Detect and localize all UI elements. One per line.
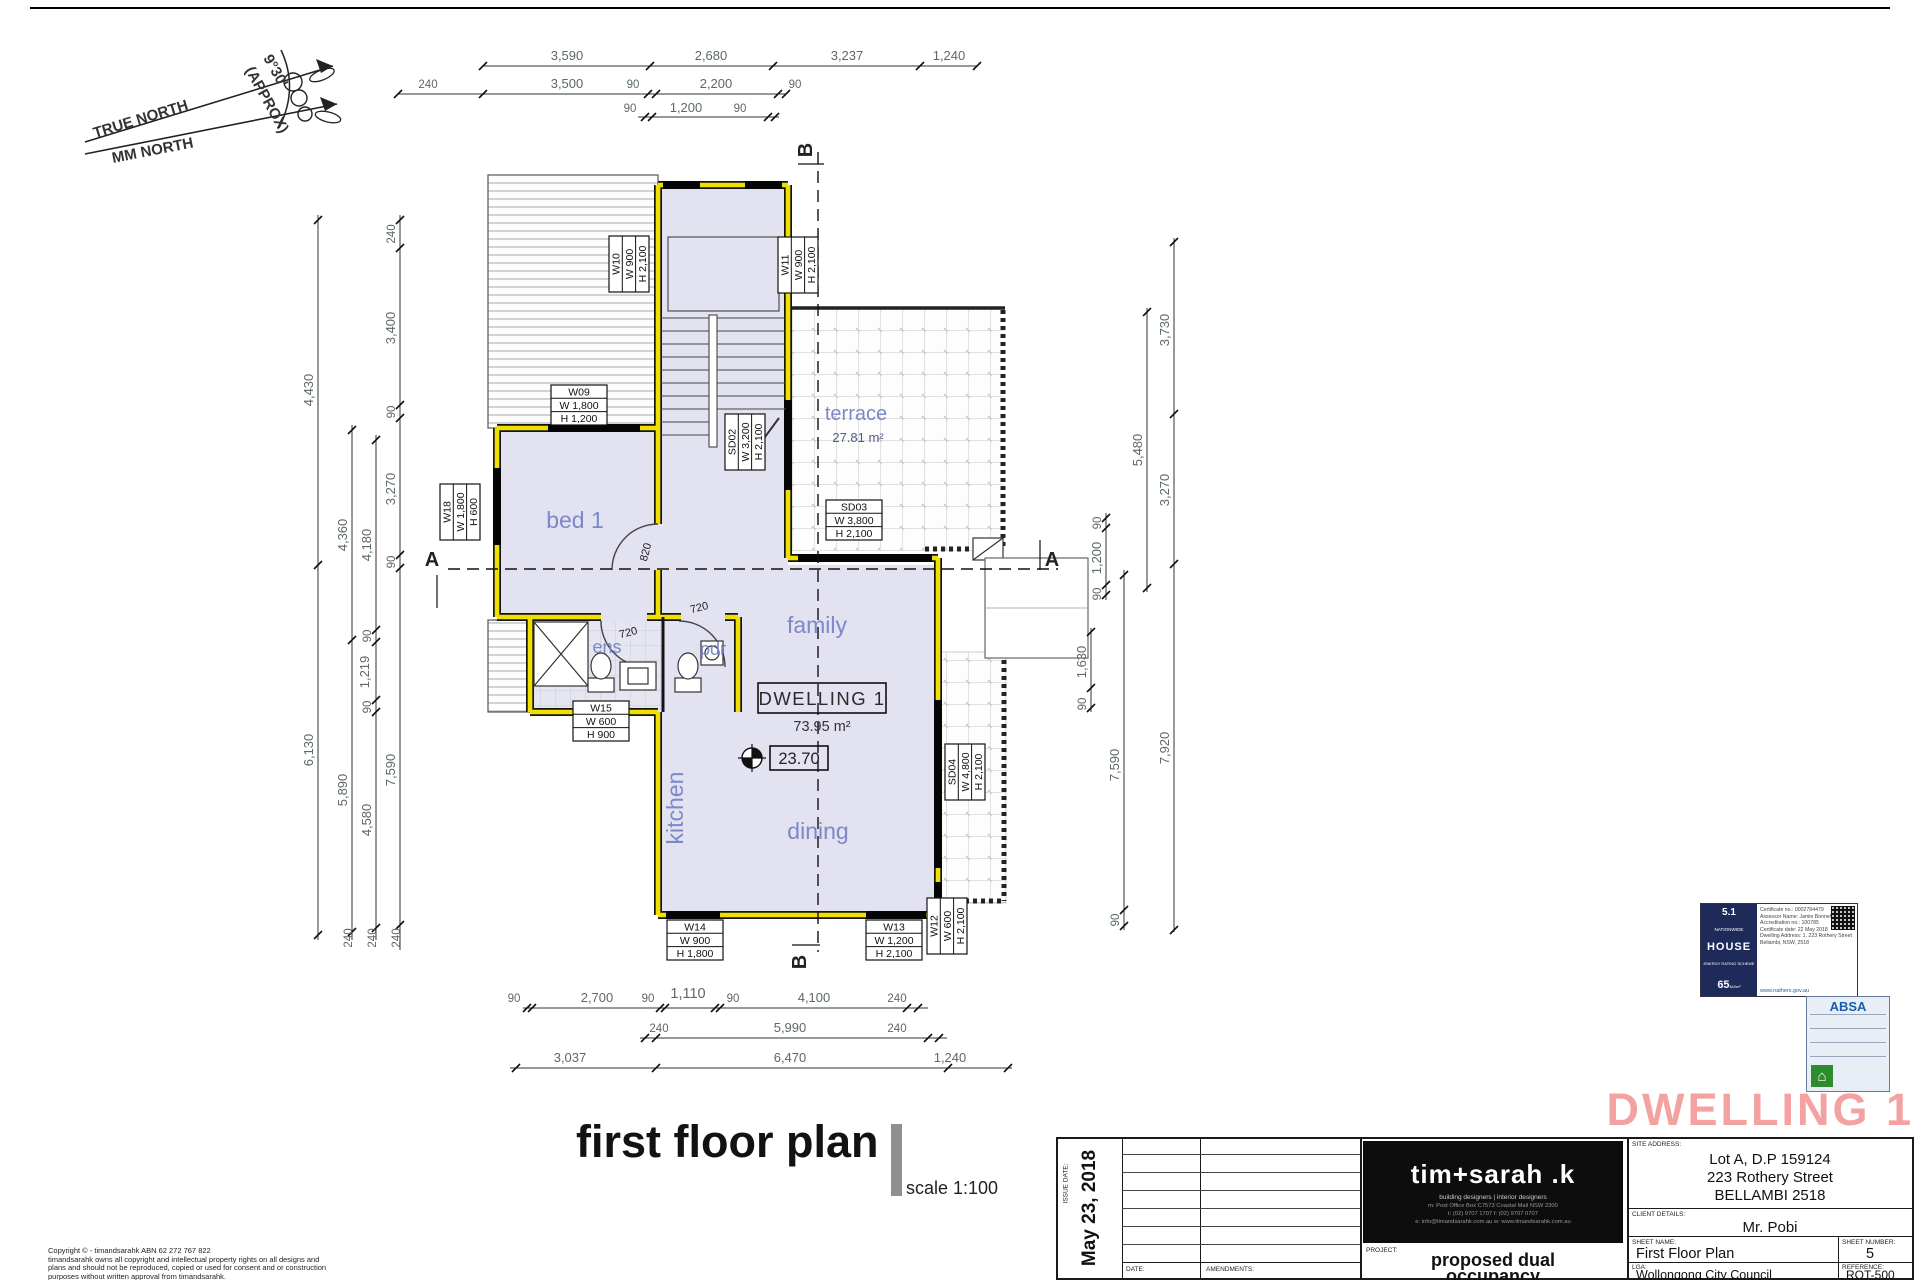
amendments-column-label: AMENDMENTS: [1206, 1266, 1254, 1273]
dimension-label: 1,630 [1074, 646, 1089, 679]
window-width: W 1,800 [559, 400, 598, 412]
dimension-label: 3,590 [551, 48, 584, 63]
window-tag-w14: W14 W 900 H 1,800 [667, 920, 723, 960]
dwelling-label: DWELLING 1 [758, 688, 885, 709]
window-width: W 600 [586, 716, 617, 728]
dwelling-area: 73.95 m² [793, 719, 850, 735]
room-label-terrace: terrace [825, 403, 887, 425]
sheet-name: First Floor Plan [1636, 1246, 1734, 1262]
window-id: SD03 [841, 502, 867, 514]
logo-contact-line: m: Post Office Box C7573 Coastal Mail NS… [1428, 1203, 1558, 1209]
window-height: H 1,800 [677, 948, 714, 960]
nathers-score-unit: MJ/m² [1730, 984, 1741, 989]
client-name: Mr. Pobi [1630, 1219, 1910, 1236]
window-tag-w13: W13 W 1,200 H 2,100 [866, 920, 922, 960]
window-id: SD02 [727, 429, 739, 455]
client-details-label: CLIENT DETAILS: [1632, 1211, 1685, 1218]
dimension-label: 1,110 [670, 986, 705, 1002]
window-height: H 1,200 [561, 413, 598, 425]
dimension-label: 3,037 [554, 1050, 587, 1065]
window-height: H 2,100 [955, 907, 967, 944]
window-tag-w11: W11 W 900 H 2,100 [778, 237, 818, 293]
top-dimensions: 3,590 2,680 3,237 1,240 240 3,500 90 2,2… [418, 48, 965, 115]
window-width: W 900 [793, 250, 805, 281]
nathers-rating-panel: 5.1 NATIONWIDE HOUSE ENERGY RATING SCHEM… [1701, 904, 1757, 996]
dimension-label: 90 [1092, 517, 1104, 530]
room-label-kitchen: kitchen [662, 772, 688, 845]
dimension-label: 4,430 [301, 374, 316, 407]
site-address-label: SITE ADDRESS: [1632, 1141, 1681, 1148]
dimension-label: 90 [508, 993, 521, 1005]
designer-logo: tim+sarah .k building designers | interi… [1363, 1141, 1623, 1243]
window-tag-sd03: SD03 W 3,800 H 2,100 [826, 500, 882, 540]
room-label-bed1: bed 1 [546, 507, 604, 533]
window-width: W 3,200 [740, 422, 752, 461]
bottom-dimensions: 90 2,700 90 1,110 90 4,100 240 240 5,990… [508, 986, 967, 1065]
sheet-number: 5 [1866, 1246, 1874, 1262]
window-tag-w10: W10 W 900 H 2,100 [609, 236, 649, 292]
section-b-bottom: B [789, 955, 811, 969]
nathers-score: 65 [1717, 979, 1729, 991]
window-width: W 900 [680, 935, 711, 947]
window-id: W10 [611, 253, 623, 275]
room-label-ens: ens [592, 637, 621, 657]
nathers-brand3: ENERGY RATING SCHEME [1704, 961, 1755, 966]
room-label-dining: dining [787, 818, 848, 844]
nathers-detail-line: Bellambi, NSW, 2518 [1760, 940, 1854, 947]
issue-date: May 23, 2018 [1079, 1149, 1101, 1265]
window-id: W15 [590, 703, 612, 715]
window-height: H 2,100 [806, 246, 818, 283]
dimension-label: 240 [386, 224, 398, 243]
window-id: W18 [442, 501, 454, 523]
nathers-brand2: HOUSE [1707, 941, 1751, 953]
dimension-label: 90 [727, 993, 740, 1005]
site-address-line3: BELLAMBI 2518 [1630, 1187, 1910, 1204]
section-a-right: A [1045, 549, 1059, 571]
window-id: W13 [883, 922, 905, 934]
dimension-label: 240 [887, 993, 906, 1005]
dimension-label: 1,200 [1089, 542, 1104, 575]
site-address-line2: 223 Rothery Street [1630, 1169, 1910, 1186]
dimension-label: 90 [734, 103, 747, 115]
dimension-label: 7,920 [1157, 732, 1172, 765]
dimension-label: 5,990 [774, 1020, 807, 1035]
window-height: H 2,100 [876, 948, 913, 960]
dimension-label: 240 [887, 1023, 906, 1035]
date-column-label: DATE: [1126, 1266, 1145, 1273]
copyright-note: Copyright © - timandsarahk ABN 62 272 76… [48, 1247, 468, 1280]
dimension-label: 6,470 [774, 1050, 807, 1065]
dimension-label: 90 [624, 103, 637, 115]
dimension-label: 90 [1092, 588, 1104, 601]
amendments-table [1122, 1137, 1360, 1262]
scale-label: scale 1:100 [906, 1178, 998, 1199]
window-id: W11 [780, 254, 792, 275]
window-width: W 4,800 [960, 752, 972, 791]
logo-contact-line: t: (02) 9707 1707 f: (02) 9707 0707 [1448, 1211, 1538, 1217]
dimension-label: 90 [1077, 698, 1089, 711]
project-name-line2: occupancy [1363, 1266, 1623, 1280]
dimension-label: 240 [343, 928, 355, 947]
window-height: H 2,100 [637, 245, 649, 282]
drawing-sheet: TRUE NORTH MM NORTH 9°30' (APPROX) [0, 0, 1920, 1280]
logo-tagline: building designers | interior designers [1439, 1194, 1547, 1201]
level-value: 23.70 [778, 750, 819, 768]
logo-contact-line: e: info@timandsarahk.com.au w: www.timan… [1415, 1219, 1570, 1225]
house-icon: ⌂ [1811, 1065, 1833, 1087]
absa-certificate: ABSA ⌂ [1806, 996, 1890, 1092]
dimension-label: 90 [1110, 914, 1122, 927]
window-tag-w12: W12 W 600 H 2,100 [927, 898, 967, 954]
window-height: H 600 [468, 498, 480, 526]
room-label-pdr: pdr [700, 639, 726, 659]
dimension-label: 3,270 [1157, 474, 1172, 507]
logo-name: tim+sarah .k [1411, 1159, 1575, 1190]
mag-north-label: MM NORTH [111, 134, 195, 166]
absa-table-row [1810, 1014, 1886, 1028]
window-width: W 3,800 [834, 515, 873, 527]
site-address-line1: Lot A, D.P 159124 [1630, 1151, 1910, 1168]
dimension-label: 3,500 [551, 76, 584, 91]
dimension-label: 7,590 [1107, 749, 1122, 782]
terrace-area: 27.81 m² [832, 430, 884, 445]
window-height: H 900 [587, 729, 615, 741]
dimension-label: 90 [362, 630, 374, 643]
dimension-label: 1,200 [670, 100, 703, 115]
window-width: W 900 [624, 249, 636, 280]
dimension-label: 6,130 [301, 734, 316, 767]
dimension-label: 2,700 [581, 990, 614, 1005]
window-id: W12 [929, 915, 941, 937]
section-b-top: B [795, 143, 817, 157]
dimension-label: 4,180 [359, 529, 374, 562]
scale-bar [891, 1124, 902, 1196]
qr-code-icon [1831, 906, 1855, 930]
reference-value: ROT-500 [1846, 1268, 1895, 1280]
window-width: W 1,800 [455, 492, 467, 531]
nathers-star-rating: 5.1 [1722, 907, 1736, 918]
window-tag-w15: W15 W 600 H 900 [573, 701, 629, 741]
nathers-brand1: NATIONWIDE [1714, 927, 1743, 932]
window-tag-sd04: SD04 W 4,800 H 2,100 [945, 744, 985, 800]
dimension-label: 4,360 [335, 519, 350, 552]
dimension-label: 240 [418, 79, 437, 91]
window-id: W14 [684, 922, 706, 934]
nathers-url: www.nathers.gov.au [1760, 988, 1809, 994]
dimension-label: 5,480 [1130, 434, 1145, 467]
nathers-certificate: 5.1 NATIONWIDE HOUSE ENERGY RATING SCHEM… [1700, 903, 1858, 997]
sheet-number-label: SHEET NUMBER: [1842, 1239, 1895, 1246]
window-width: W 600 [942, 911, 954, 942]
dimension-label: 1,240 [933, 48, 966, 63]
north-arrow-icon: TRUE NORTH MM NORTH 9°30' (APPROX) [85, 50, 342, 167]
window-tag-w09: W09 W 1,800 H 1,200 [551, 385, 607, 425]
absa-table-row [1810, 1028, 1886, 1042]
window-height: H 2,100 [753, 423, 765, 460]
terrace-floor [790, 308, 1005, 551]
dimension-label: 240 [367, 928, 379, 947]
window-tag-w18: W18 W 1,800 H 600 [440, 484, 480, 540]
dimension-label: 90 [386, 406, 398, 419]
window-height: H 2,100 [973, 753, 985, 790]
dimension-label: 2,680 [695, 48, 728, 63]
dimension-label: 90 [642, 993, 655, 1005]
dimension-label: 5,890 [335, 774, 350, 807]
sheet-name-label: SHEET NAME: [1632, 1239, 1676, 1246]
dimension-label: 3,730 [1157, 314, 1172, 347]
window-id: SD04 [947, 759, 959, 785]
lga-value: Wollongong City Council [1636, 1268, 1772, 1280]
dimension-label: 90 [362, 701, 374, 714]
absa-logo: ABSA [1807, 999, 1889, 1014]
section-a-left: A [425, 549, 439, 571]
dimension-label: 240 [391, 928, 403, 947]
dimension-label: 90 [627, 79, 640, 91]
dimension-label: 240 [649, 1023, 668, 1035]
plan-title: first floor plan [576, 1116, 879, 1168]
window-width: W 1,200 [874, 935, 913, 947]
nathers-details-panel: Certificate no.: 0002784479 Assessor Nam… [1757, 904, 1857, 996]
dimension-label: 90 [789, 79, 802, 91]
nathers-detail-line: Dwelling Address: 1, 223 Rothery Street [1760, 933, 1854, 940]
copyright-line: purposes without written approval from t… [48, 1273, 468, 1280]
dimension-label: 3,400 [383, 312, 398, 345]
dimension-label: 2,200 [700, 76, 733, 91]
dimension-label: 1,240 [934, 1050, 967, 1065]
right-dimensions: 90 1,200 90 1,630 90 7,590 90 5,480 3,73… [1074, 314, 1172, 927]
window-height: H 2,100 [836, 528, 873, 540]
dimension-label: 3,237 [831, 48, 864, 63]
dimension-label: 1,219 [357, 656, 372, 689]
window-id: W09 [568, 387, 590, 399]
dimension-label: 4,580 [359, 804, 374, 837]
room-label-family: family [787, 612, 848, 638]
dimension-label: 4,100 [798, 990, 831, 1005]
true-north-label: TRUE NORTH [91, 97, 190, 142]
dimension-label: 7,590 [383, 754, 398, 787]
window-tag-sd02: SD02 W 3,200 H 2,100 [725, 414, 765, 470]
dimension-label: 3,270 [383, 473, 398, 506]
dimension-label: 90 [386, 556, 398, 569]
absa-table-row [1810, 1042, 1886, 1056]
